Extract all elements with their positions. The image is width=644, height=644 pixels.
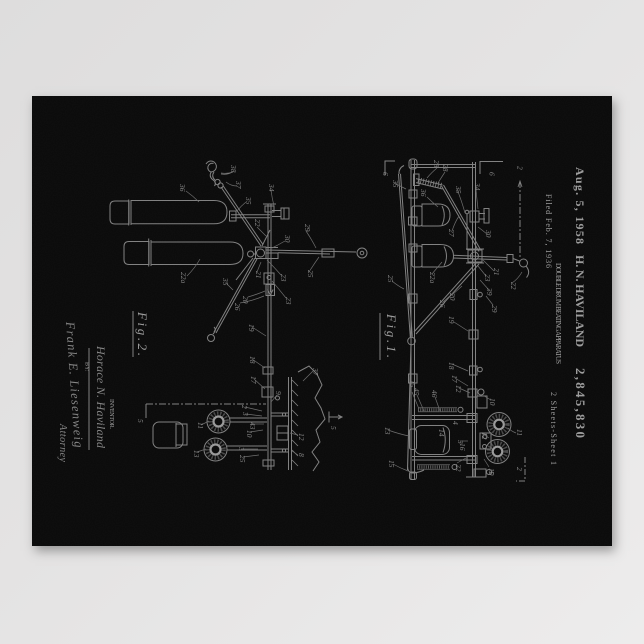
- svg-text:25: 25: [306, 270, 315, 278]
- svg-text:38: 38: [229, 164, 238, 173]
- svg-text:10: 10: [488, 398, 497, 406]
- svg-text:35: 35: [244, 196, 253, 205]
- svg-text:11: 11: [196, 422, 205, 429]
- svg-text:Fig.2.: Fig.2.: [135, 311, 150, 356]
- svg-text:9: 9: [274, 391, 283, 395]
- svg-text:3: 3: [241, 411, 250, 416]
- svg-text:6: 6: [488, 172, 497, 176]
- svg-text:34: 34: [267, 183, 276, 192]
- svg-text:23: 23: [284, 297, 293, 305]
- svg-text:35: 35: [221, 277, 230, 286]
- svg-text:DOUBLE DRUM BEATING APPARATUS: DOUBLE DRUM BEATING APPARATUS: [554, 263, 562, 364]
- svg-text:5: 5: [329, 426, 338, 430]
- svg-text:13: 13: [192, 450, 201, 458]
- svg-text:36: 36: [419, 188, 428, 197]
- svg-text:23: 23: [279, 274, 288, 282]
- svg-text:15: 15: [387, 460, 396, 468]
- svg-text:2 Sheets-Sheet 1: 2 Sheets-Sheet 1: [549, 392, 558, 465]
- svg-text:22: 22: [253, 219, 262, 227]
- svg-text:22a: 22a: [179, 272, 188, 284]
- svg-text:29: 29: [303, 224, 312, 232]
- svg-text:36: 36: [178, 183, 187, 192]
- svg-text:16: 16: [458, 443, 467, 451]
- svg-text:Aug. 5, 1958: Aug. 5, 1958: [573, 167, 587, 244]
- svg-text:19: 19: [447, 316, 456, 324]
- svg-text:28: 28: [441, 164, 450, 172]
- svg-text:22a: 22a: [428, 272, 437, 284]
- svg-text:5: 5: [487, 471, 496, 475]
- svg-text:2: 2: [240, 405, 249, 409]
- svg-text:46: 46: [430, 390, 439, 398]
- svg-text:39: 39: [485, 287, 494, 296]
- svg-text:37: 37: [234, 180, 243, 189]
- svg-text:20: 20: [448, 293, 457, 301]
- svg-text:30: 30: [484, 229, 493, 238]
- svg-text:12: 12: [297, 433, 306, 441]
- svg-text:37: 37: [311, 367, 320, 376]
- svg-text:15: 15: [408, 380, 417, 388]
- svg-text:28: 28: [432, 160, 441, 168]
- svg-text:21: 21: [254, 271, 263, 279]
- svg-text:Filed Feb. 7, 1936: Filed Feb. 7, 1936: [544, 194, 553, 268]
- svg-text:2,845,830: 2,845,830: [573, 368, 588, 438]
- svg-text:Fig.1.: Fig.1.: [384, 313, 399, 358]
- svg-text:22: 22: [509, 282, 518, 290]
- svg-text:34: 34: [473, 182, 482, 191]
- svg-text:12: 12: [480, 432, 489, 440]
- svg-text:H. N. HAVILAND: H. N. HAVILAND: [573, 255, 587, 347]
- svg-text:5: 5: [136, 419, 145, 423]
- svg-text:18: 18: [447, 362, 456, 370]
- svg-text:26: 26: [233, 303, 242, 311]
- svg-text:Horace N. Haviland: Horace N. Haviland: [94, 345, 108, 449]
- svg-text:35: 35: [391, 179, 400, 188]
- svg-text:17: 17: [450, 375, 459, 383]
- svg-text:30: 30: [283, 234, 292, 243]
- svg-text:3: 3: [237, 446, 246, 451]
- svg-text:13: 13: [383, 427, 392, 435]
- svg-text:25: 25: [386, 275, 395, 283]
- svg-text:6: 6: [381, 172, 390, 176]
- svg-text:18: 18: [248, 356, 257, 364]
- svg-text:14: 14: [437, 429, 446, 437]
- svg-text:8: 8: [297, 453, 306, 457]
- svg-text:27: 27: [447, 229, 456, 237]
- svg-text:23: 23: [483, 274, 492, 282]
- svg-text:26: 26: [438, 300, 447, 308]
- svg-text:17: 17: [249, 376, 258, 384]
- svg-text:43: 43: [248, 422, 257, 430]
- svg-text:2: 2: [515, 467, 524, 471]
- svg-text:11: 11: [515, 429, 524, 436]
- svg-text:4: 4: [451, 421, 460, 425]
- svg-text:29: 29: [490, 305, 499, 313]
- svg-text:Attorney: Attorney: [57, 423, 68, 463]
- svg-text:12: 12: [454, 385, 463, 393]
- svg-text:2: 2: [516, 166, 525, 170]
- svg-text:19: 19: [247, 324, 256, 332]
- svg-text:21: 21: [492, 268, 501, 276]
- svg-text:22: 22: [454, 464, 463, 472]
- svg-text:25: 25: [238, 455, 247, 463]
- svg-text:45: 45: [412, 388, 421, 396]
- svg-text:10: 10: [245, 430, 254, 438]
- svg-text:35: 35: [454, 185, 463, 194]
